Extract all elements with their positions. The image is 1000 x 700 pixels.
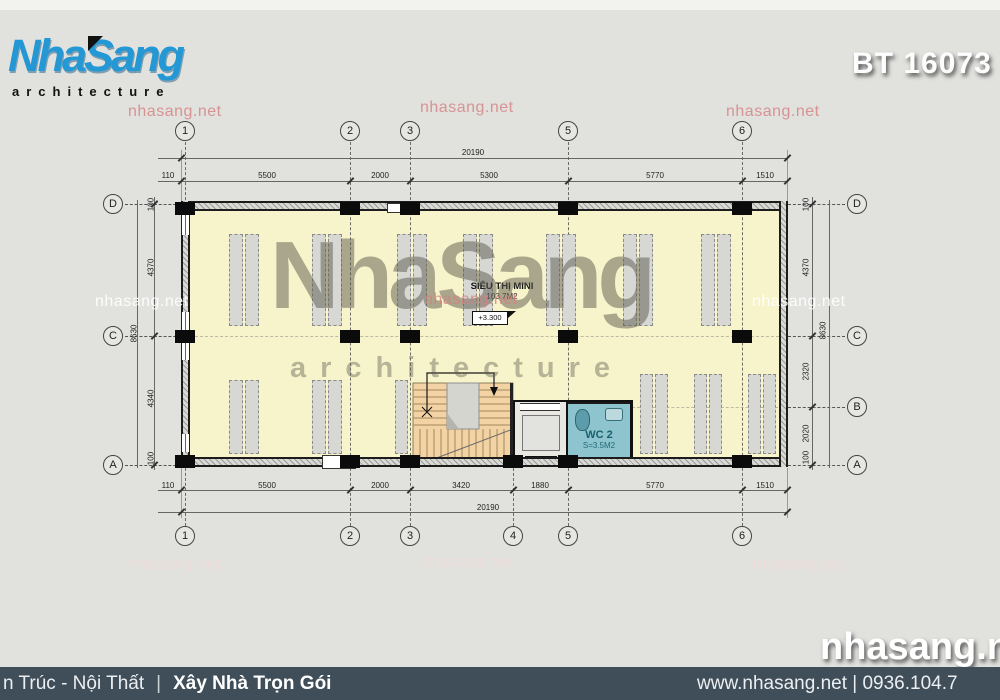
wc-area: S=3.5M2 [568, 441, 630, 450]
watermark-site: nhasang.net [726, 103, 820, 121]
dim-line [158, 181, 788, 182]
grid-bubble-col: 2 [340, 121, 360, 141]
dim-label: 100 [147, 190, 156, 220]
dim-label-overall: 20190 [477, 503, 499, 512]
watermark-site: nhasang.net [420, 554, 514, 572]
watermark-site: nhasang.net [752, 293, 846, 311]
dim-label: 5300 [480, 171, 498, 180]
grid-bubble-row: A [103, 455, 123, 475]
dim-label: 3420 [452, 481, 470, 490]
shelf-unit [638, 372, 670, 456]
dim-label-overall: 8630 [130, 319, 139, 349]
dim-label: 1880 [531, 481, 549, 490]
logo-subtitle: architecture [12, 84, 170, 99]
column [400, 455, 420, 468]
window-left-3 [181, 434, 190, 452]
footer-services: n Trúc - Nội Thất [3, 673, 144, 695]
watermark-center-logo: NhaSang [270, 228, 651, 324]
column [340, 330, 360, 343]
logo-wedge-icon [88, 36, 103, 51]
dim-label: 4370 [802, 253, 811, 283]
footer-bar: n Trúc - Nội Thất | Xây Nhà Trọn Gói www… [0, 667, 1000, 700]
wc-top-wall [568, 400, 632, 402]
column [732, 330, 752, 343]
grid-bubble-row: D [847, 194, 867, 214]
gridline-C-interior [190, 336, 779, 337]
watermark-site: nhasang.net [128, 556, 222, 574]
watermark-site: nhasang.net [753, 556, 847, 574]
gridline-D-right [788, 204, 845, 205]
grid-bubble-col: 3 [400, 526, 420, 546]
gridline-C-right [788, 336, 845, 337]
wall-right [779, 201, 788, 467]
grid-bubble-col: 5 [558, 526, 578, 546]
dim-line [158, 490, 788, 491]
project-code: BT 16073 [852, 47, 992, 81]
dim-label: 2000 [371, 481, 389, 490]
toilet-icon [575, 409, 590, 431]
watermark-site: nhasang.net [95, 293, 189, 311]
dim-label: 4340 [147, 384, 156, 414]
grid-bubble-col: 4 [503, 526, 523, 546]
grid-bubble-col: 6 [732, 121, 752, 141]
wc-label: WC 2 [568, 430, 630, 441]
column [175, 202, 195, 215]
column [503, 455, 523, 468]
gridline-4 [513, 468, 514, 526]
dim-label: 110 [162, 481, 175, 490]
elevator-door-top [520, 403, 560, 411]
grid-bubble-row: A [847, 455, 867, 475]
dim-label-overall: 20190 [462, 148, 484, 157]
watermark-center-subtitle: architecture [290, 352, 624, 385]
wc-room: WC 2 S=3.5M2 [568, 402, 630, 458]
dim-label: 1510 [756, 171, 774, 180]
watermark-site: nhasang.net [420, 99, 514, 117]
column [732, 202, 752, 215]
dim-line [158, 512, 788, 513]
column [400, 202, 420, 215]
grid-bubble-col: 6 [732, 526, 752, 546]
grid-bubble-col: 5 [558, 121, 578, 141]
blueprint-page: NhaSang architecture BT 16073 [0, 0, 1000, 700]
column [400, 330, 420, 343]
dim-label: 1510 [756, 481, 774, 490]
dim-label: 2000 [371, 171, 389, 180]
column [558, 202, 578, 215]
grid-bubble-col: 3 [400, 121, 420, 141]
grid-bubble-col: 2 [340, 526, 360, 546]
grid-bubble-col: 1 [175, 121, 195, 141]
dim-label: 100 [802, 443, 811, 473]
wall-bottom [181, 457, 788, 467]
shelf-unit [746, 372, 778, 456]
shelf-unit [227, 232, 261, 328]
column [558, 330, 578, 343]
footer-divider: | [156, 673, 161, 695]
dim-label: 100 [802, 190, 811, 220]
column [340, 455, 360, 468]
column [175, 455, 195, 468]
watermark-corner: nhasang.net [820, 626, 1000, 669]
dim-label: 110 [162, 171, 175, 180]
grid-bubble-row: D [103, 194, 123, 214]
dim-label: 4370 [147, 253, 156, 283]
dim-label: 5500 [258, 481, 276, 490]
shelf-unit [699, 232, 733, 328]
watermark-site: nhasang.net [128, 103, 222, 121]
sink-icon [605, 408, 623, 421]
dim-line [158, 158, 788, 159]
elevator-cab [522, 415, 560, 451]
dim-label: 5770 [646, 171, 664, 180]
top-band [0, 0, 1000, 10]
dim-label: 5770 [646, 481, 664, 490]
shelf-unit [310, 378, 344, 456]
column [175, 330, 195, 343]
grid-bubble-col: 1 [175, 526, 195, 546]
dim-label-overall: 8630 [819, 316, 828, 346]
shelf-unit [227, 378, 261, 456]
window-left-1 [181, 213, 190, 235]
column [558, 455, 578, 468]
shelf-unit [692, 372, 724, 456]
footer-services-bold: Xây Nhà Trọn Gói [173, 673, 331, 695]
dim-label: 5500 [258, 171, 276, 180]
wall-top [181, 201, 788, 211]
grid-bubble-row: B [847, 397, 867, 417]
gridline-B-right [788, 407, 845, 408]
dim-label: 2320 [802, 357, 811, 387]
column [732, 455, 752, 468]
grid-bubble-row: C [103, 326, 123, 346]
dim-label: 100 [147, 444, 156, 474]
watermark-site: nhasang.net [424, 291, 518, 309]
dim-line [829, 200, 830, 468]
grid-bubble-row: C [847, 326, 867, 346]
footer-contact: www.nhasang.net | 0936.104.7 [697, 673, 958, 695]
column [340, 202, 360, 215]
gridline-A-right [788, 465, 845, 466]
